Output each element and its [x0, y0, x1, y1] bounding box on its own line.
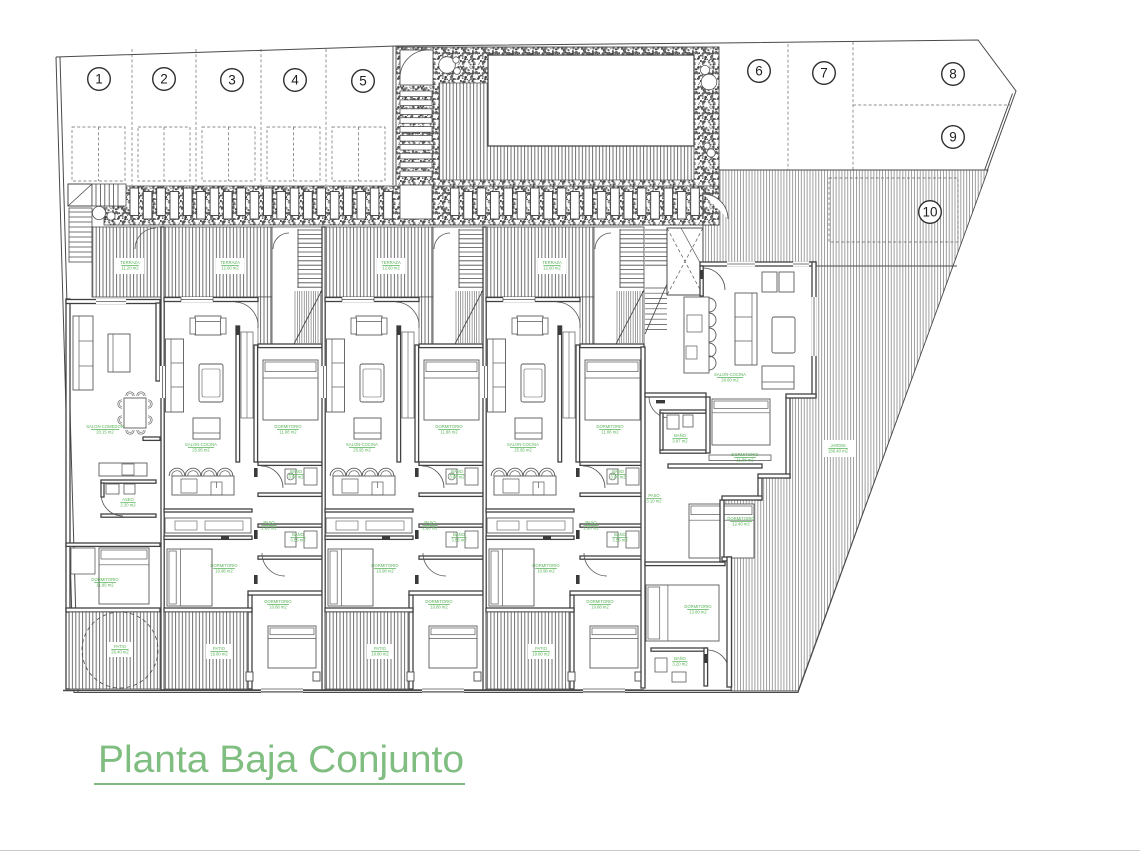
svg-text:DORMITORIO: DORMITORIO	[731, 452, 759, 457]
svg-text:5: 5	[359, 74, 367, 89]
svg-text:11.88 m2: 11.88 m2	[736, 457, 754, 462]
svg-text:11.20 m2: 11.20 m2	[121, 265, 139, 270]
svg-text:20.15 m2: 20.15 m2	[96, 429, 114, 434]
svg-text:BAÑO: BAÑO	[674, 656, 687, 661]
svg-text:SALON-COMEDOR: SALON-COMEDOR	[86, 424, 123, 429]
svg-text:DORMITORIO: DORMITORIO	[91, 577, 119, 582]
svg-text:7: 7	[820, 66, 828, 81]
svg-text:Planta Baja Conjunto: Planta Baja Conjunto	[98, 739, 464, 781]
svg-text:26.40 m2: 26.40 m2	[111, 649, 129, 654]
svg-text:3.10 m2: 3.10 m2	[646, 498, 662, 503]
svg-text:9: 9	[949, 130, 957, 145]
svg-text:PASO: PASO	[648, 493, 660, 498]
svg-text:PATIO: PATIO	[114, 644, 127, 649]
svg-text:ASEO: ASEO	[122, 497, 134, 502]
svg-text:DORMITORIO: DORMITORIO	[727, 516, 755, 521]
svg-text:11.95 m2: 11.95 m2	[96, 582, 114, 587]
svg-text:10: 10	[922, 205, 937, 220]
svg-text:6: 6	[755, 64, 763, 79]
svg-text:1: 1	[95, 72, 103, 87]
svg-text:JARDIN: JARDIN	[830, 443, 845, 448]
svg-text:12.40 m2: 12.40 m2	[732, 521, 750, 526]
svg-text:DORMITORIO: DORMITORIO	[684, 604, 712, 609]
svg-text:2: 2	[160, 72, 168, 87]
svg-text:TERRAZA: TERRAZA	[120, 260, 140, 265]
svg-text:2.30 m2: 2.30 m2	[120, 502, 136, 507]
svg-text:28.60 m2: 28.60 m2	[721, 377, 739, 382]
svg-text:8: 8	[949, 67, 957, 82]
svg-text:4: 4	[291, 73, 299, 88]
svg-text:3.97 m2: 3.97 m2	[672, 438, 688, 443]
svg-text:186.40 m2: 186.40 m2	[828, 448, 848, 453]
svg-text:BAÑO: BAÑO	[674, 433, 687, 438]
svg-text:13.80 m2: 13.80 m2	[689, 609, 707, 614]
svg-text:3: 3	[228, 73, 236, 88]
svg-text:SALON-COCINA: SALON-COCINA	[714, 372, 746, 377]
svg-text:3.20 m2: 3.20 m2	[672, 661, 688, 666]
